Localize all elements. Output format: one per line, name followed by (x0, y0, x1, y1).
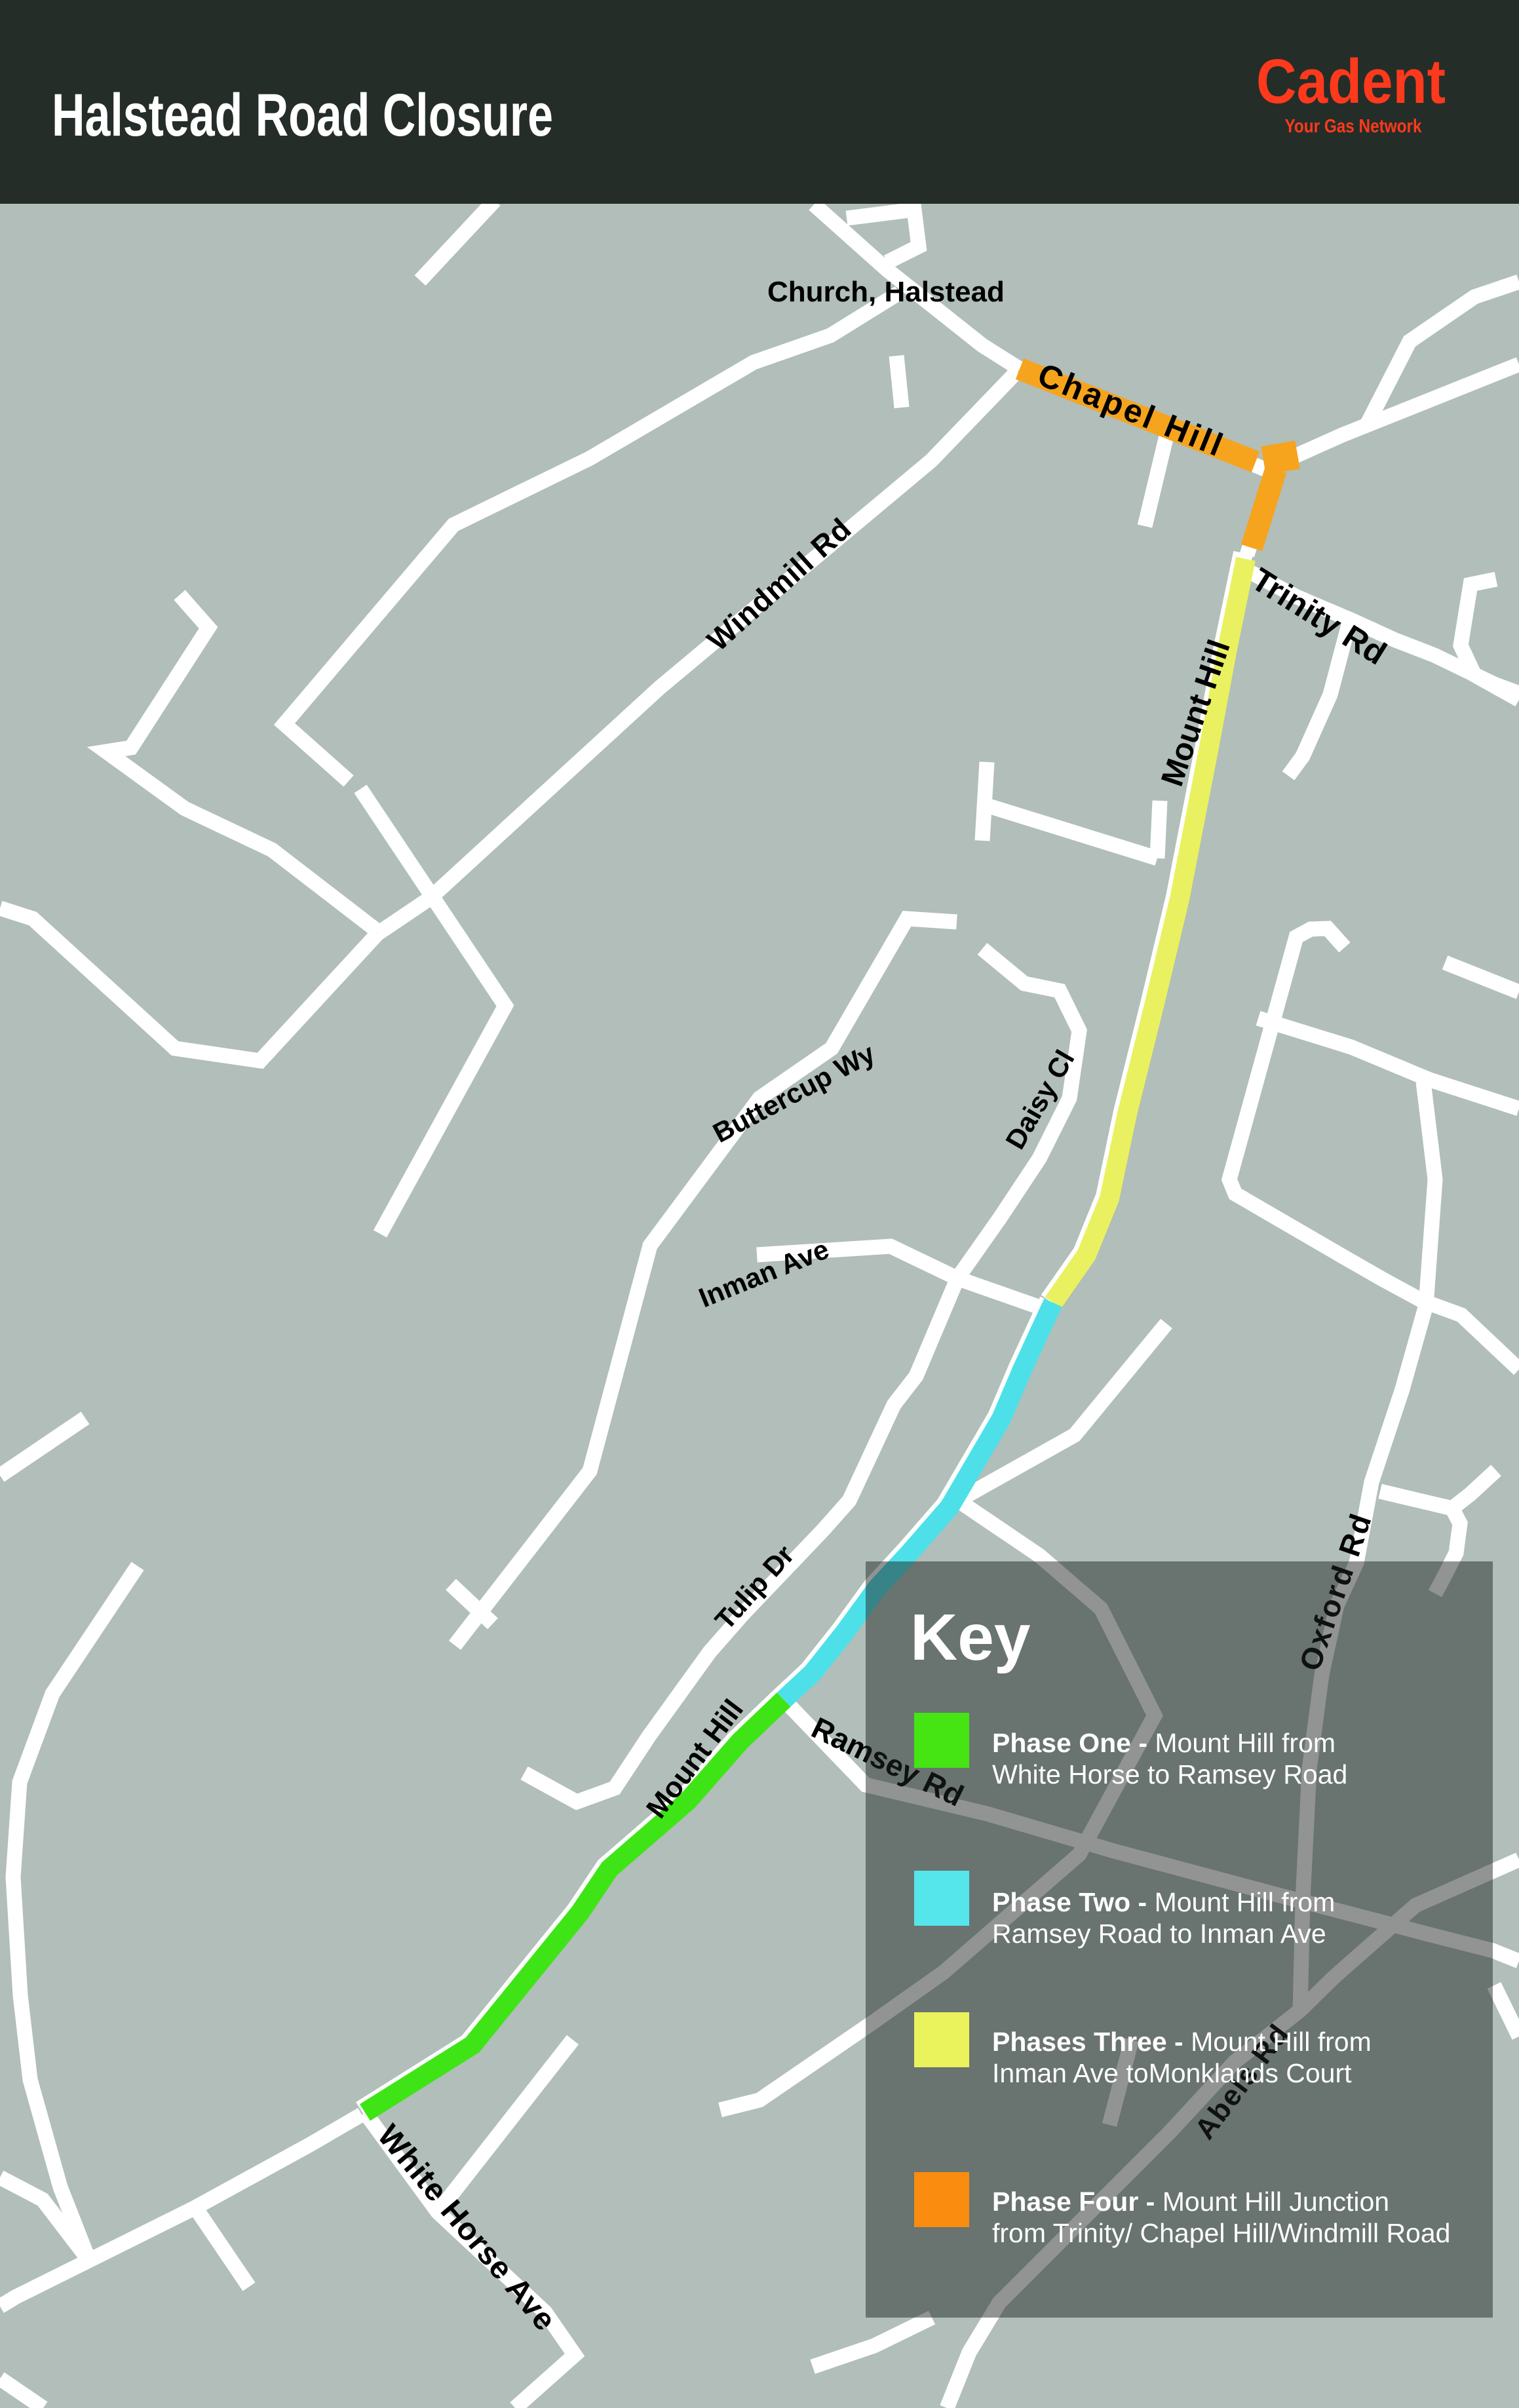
svg-text:Halstead Road Closure: Halstead Road Closure (52, 82, 553, 149)
svg-text:Key: Key (910, 1601, 1031, 1674)
svg-text:from Trinity/ Chapel Hill/Wind: from Trinity/ Chapel Hill/Windmill Road (992, 2218, 1450, 2248)
svg-text:Phase Two - Mount Hill from: Phase Two - Mount Hill from (992, 1887, 1335, 1917)
svg-text:White Horse to Ramsey Road: White Horse to Ramsey Road (992, 1759, 1347, 1789)
svg-text:Church, Halstead: Church, Halstead (767, 276, 1005, 308)
svg-text:Your Gas Network: Your Gas Network (1285, 116, 1423, 137)
svg-text:Ramsey Road to Inman Ave: Ramsey Road to Inman Ave (992, 1919, 1326, 1949)
svg-text:Phase One - Mount Hill from: Phase One - Mount Hill from (992, 1728, 1336, 1758)
svg-text:Phase Four - Mount Hill Juncti: Phase Four - Mount Hill Junction (992, 2187, 1389, 2217)
svg-text:Phases Three - Mount Hill from: Phases Three - Mount Hill from (992, 2027, 1372, 2057)
svg-text:Inman Ave toMonklands Court: Inman Ave toMonklands Court (992, 2058, 1352, 2088)
svg-text:Cadent: Cadent (1256, 47, 1446, 117)
